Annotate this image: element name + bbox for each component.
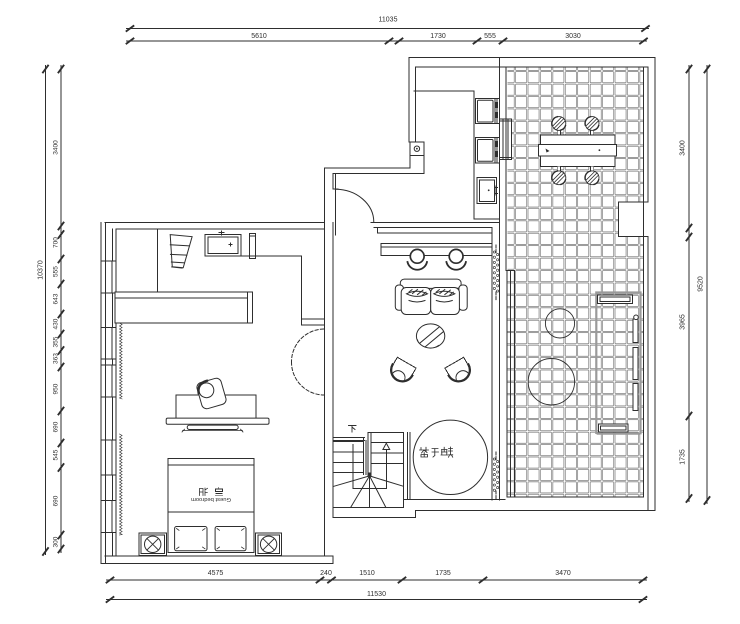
svg-text:545: 545 <box>53 449 60 460</box>
svg-text:3470: 3470 <box>555 570 571 577</box>
svg-text:1735: 1735 <box>680 449 687 465</box>
svg-text:3965: 3965 <box>680 314 687 330</box>
svg-text:430: 430 <box>53 318 60 329</box>
svg-text:5610: 5610 <box>251 33 267 40</box>
svg-text:643: 643 <box>53 293 60 304</box>
svg-text:10370: 10370 <box>38 260 45 280</box>
svg-text:Guest bedroom: Guest bedroom <box>191 496 231 502</box>
svg-text:700: 700 <box>53 237 60 248</box>
svg-text:363: 363 <box>53 353 60 364</box>
svg-text:3400: 3400 <box>53 140 60 155</box>
svg-text:3400: 3400 <box>680 140 687 156</box>
svg-text:1735: 1735 <box>435 570 451 577</box>
svg-text:240: 240 <box>320 570 332 577</box>
svg-text:9520: 9520 <box>698 276 705 292</box>
svg-text:555: 555 <box>484 33 496 40</box>
svg-text:300: 300 <box>53 536 60 547</box>
svg-text:950: 950 <box>53 383 60 394</box>
svg-text:11530: 11530 <box>367 591 386 598</box>
svg-text:11035: 11035 <box>379 17 398 24</box>
svg-text:690: 690 <box>53 495 60 506</box>
svg-text:555: 555 <box>53 266 60 277</box>
svg-text:690: 690 <box>53 421 60 432</box>
svg-text:4575: 4575 <box>208 570 224 577</box>
svg-text:1730: 1730 <box>430 33 446 40</box>
svg-text:1510: 1510 <box>359 570 375 577</box>
svg-text:355: 355 <box>53 336 60 347</box>
svg-text:3030: 3030 <box>565 33 581 40</box>
